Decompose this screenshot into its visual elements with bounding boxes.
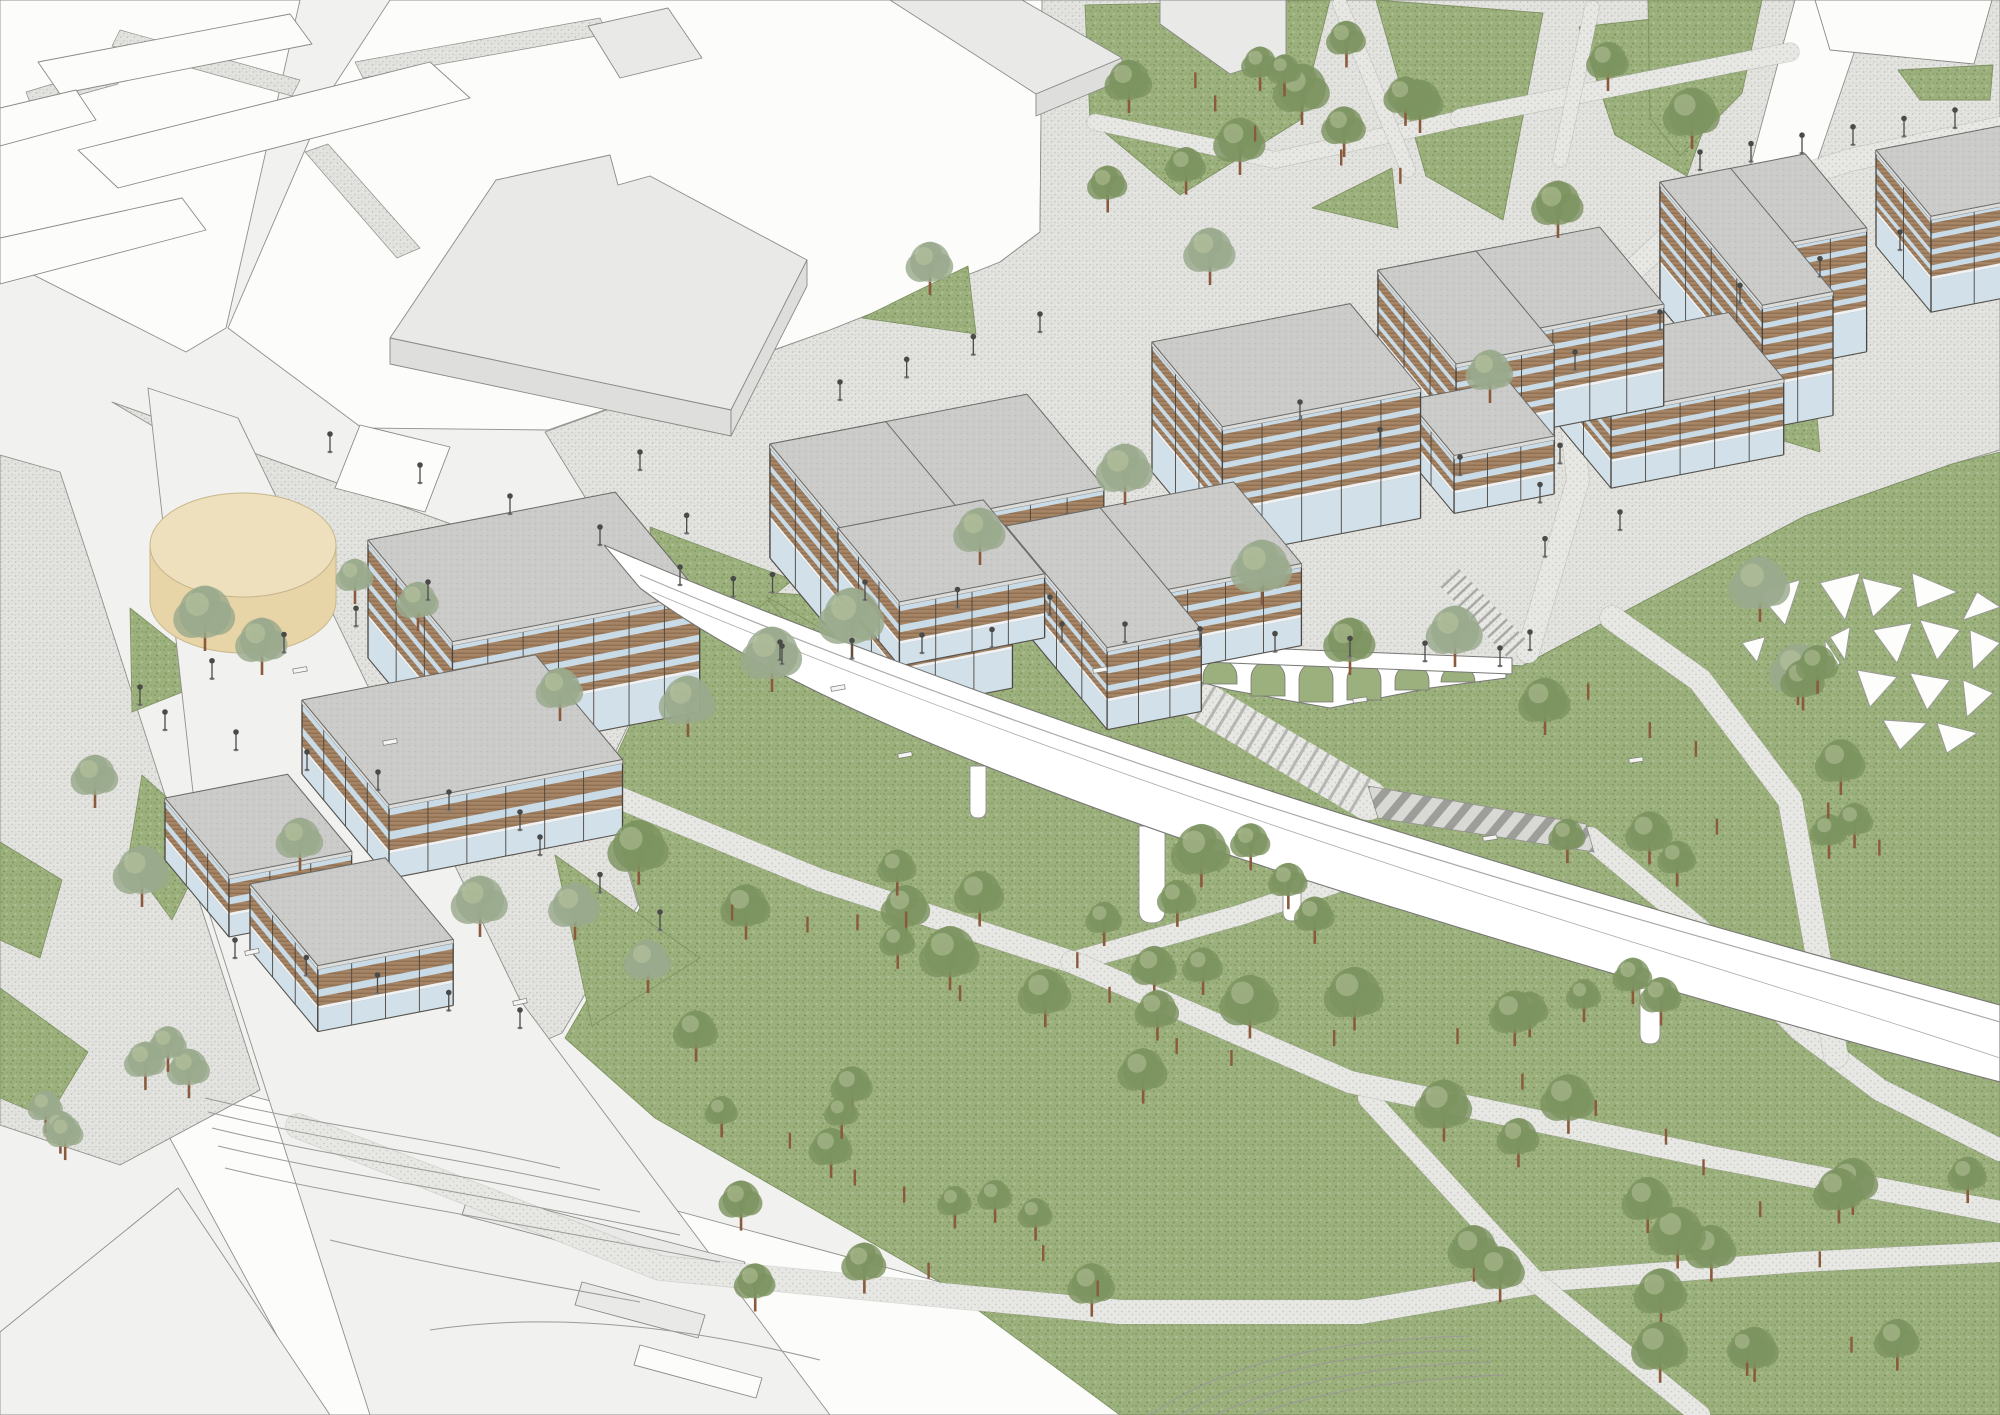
viaduct-arch bbox=[1251, 661, 1285, 696]
masterplan-stage bbox=[0, 0, 2000, 1415]
bridge-pillar bbox=[970, 766, 986, 818]
viaduct-arch bbox=[1299, 662, 1333, 702]
cylinder-top bbox=[150, 493, 336, 597]
site-plan-rendering bbox=[0, 0, 2000, 1415]
